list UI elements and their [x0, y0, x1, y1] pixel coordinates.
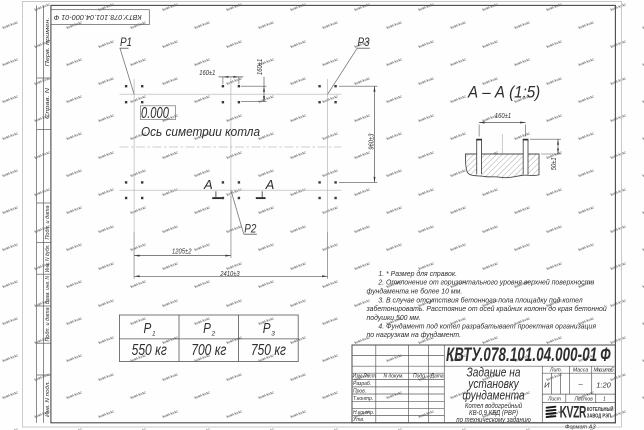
svg-text:Подп.: Подп.	[413, 374, 426, 380]
svg-text:3: 3	[271, 330, 275, 337]
svg-text:4. Фундамент под котел разраба: 4. Фундамент под котел разрабатывает про…	[378, 323, 596, 331]
svg-text:А – А (1:5): А – А (1:5)	[467, 84, 540, 102]
svg-text:Масса: Масса	[573, 368, 588, 374]
svg-text:Ось симетрии котла: Ось симетрии котла	[141, 124, 260, 139]
svg-text:подушки 500 мм.: подушки 500 мм.	[367, 314, 421, 322]
svg-text:3. В случае отсутствия бетонно: 3. В случае отсутствия бетонного пола пл…	[378, 297, 582, 305]
svg-text:160±1: 160±1	[256, 59, 264, 75]
svg-text:Разраб.: Разраб.	[353, 381, 371, 387]
svg-text:Т.контр.: Т.контр.	[353, 396, 373, 402]
svg-text:Инв. N дубл.: Инв. N дубл.	[45, 244, 51, 272]
svg-text:Подп. и дата: Подп. и дата	[45, 308, 51, 342]
svg-text:И: И	[544, 381, 550, 390]
svg-text:Подп. и дата: Подп. и дата	[45, 206, 51, 240]
svg-text:960±3: 960±3	[368, 133, 376, 149]
svg-text:Лист: Лист	[547, 397, 561, 403]
svg-text:50±1: 50±1	[551, 157, 559, 170]
svg-text:ЗАВОД РЭП: ЗАВОД РЭП	[587, 413, 611, 418]
svg-text:Справ. N: Справ. N	[45, 87, 51, 119]
svg-text:Дата: Дата	[430, 374, 444, 380]
svg-text:2410±3: 2410±3	[219, 270, 240, 278]
svg-text:КВТУ.078.101.04.000-01 Ф: КВТУ.078.101.04.000-01 Ф	[53, 13, 141, 22]
svg-text:Листов: Листов	[574, 397, 594, 403]
svg-text:1: 1	[152, 330, 156, 337]
svg-text:1: 1	[603, 397, 606, 403]
svg-text:по нагрузкам на фундамент.: по нагрузкам на фундамент.	[367, 331, 462, 339]
svg-text:0.000: 0.000	[141, 104, 169, 121]
svg-text:Р: Р	[203, 320, 211, 337]
svg-text:Масштаб: Масштаб	[594, 368, 615, 374]
svg-text:Инв. N подл.: Инв. N подл.	[45, 381, 51, 417]
svg-text:по техническому заданию: по техническому заданию	[456, 416, 530, 425]
svg-text:А: А	[265, 177, 275, 192]
svg-text:550 кг: 550 кг	[132, 341, 167, 359]
svg-text:750 кг: 750 кг	[251, 341, 286, 359]
svg-text:1. * Размер для справок.: 1. * Размер для справок.	[378, 270, 457, 278]
svg-text:фундамента: фундамента	[462, 388, 525, 402]
svg-text:Р1: Р1	[120, 36, 132, 49]
svg-text:Н.контр.: Н.контр.	[353, 410, 374, 416]
svg-text:160±1: 160±1	[199, 69, 215, 77]
svg-text:160±1: 160±1	[495, 112, 511, 120]
svg-text:КВТУ.078.101.04.000-01: КВТУ.078.101.04.000-01	[446, 345, 597, 366]
svg-text:Р: Р	[144, 320, 152, 337]
svg-text:Изм.Лист: Изм.Лист	[353, 374, 377, 380]
svg-text:Котел водогрейный: Котел водогрейный	[465, 401, 523, 410]
svg-text:Пров.: Пров.	[353, 389, 366, 395]
svg-text:Р3: Р3	[358, 36, 370, 49]
svg-text:KVZR: KVZR	[560, 403, 587, 421]
svg-text:Взам. инв. N: Взам. инв. N	[45, 275, 51, 304]
svg-text:2. Отклонение от горизонтально: 2. Отклонение от горизонтального уровня …	[377, 279, 594, 287]
svg-text:Утв.: Утв.	[353, 417, 364, 423]
svg-text:забетонировать. Расстояние от: забетонировать. Расстояние от осей крайн…	[366, 305, 607, 313]
svg-text:Ф: Ф	[600, 345, 611, 366]
svg-text:А: А	[203, 177, 213, 192]
svg-text:2: 2	[211, 330, 216, 337]
svg-text:Лит.: Лит.	[549, 368, 562, 374]
svg-text:1205±2: 1205±2	[172, 248, 192, 256]
svg-text:700 кг: 700 кг	[191, 341, 226, 359]
svg-text:фундамента не более 10 мм.: фундамента не более 10 мм.	[367, 287, 463, 295]
svg-text:Р: Р	[263, 320, 271, 337]
svg-text:Формат А3: Формат А3	[565, 424, 596, 430]
svg-text:1:20: 1:20	[596, 381, 611, 390]
svg-text:N докум.: N докум.	[384, 374, 404, 380]
svg-text:Р2: Р2	[244, 222, 256, 235]
svg-text:–: –	[578, 380, 584, 389]
svg-text:Перв. примен.: Перв. примен.	[45, 18, 51, 67]
